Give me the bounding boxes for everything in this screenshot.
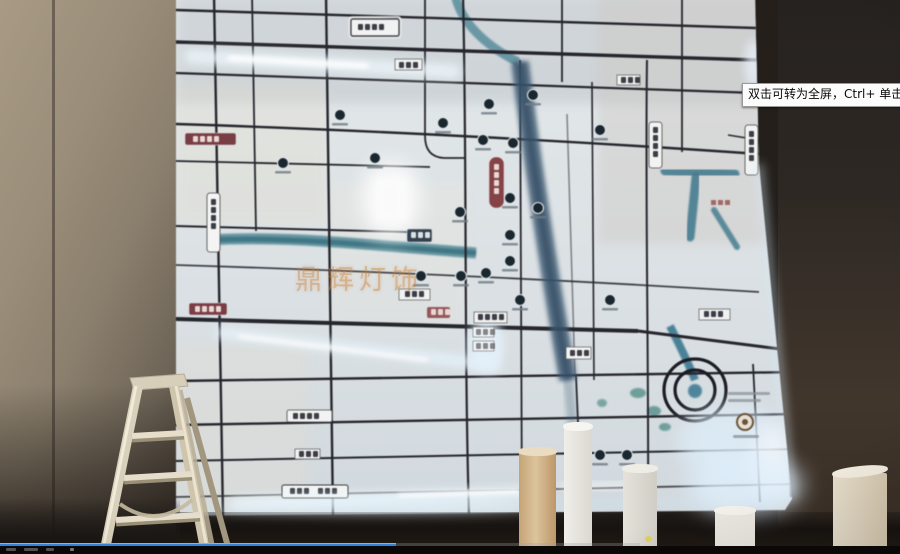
bright-panel	[373, 176, 409, 224]
seek-fill[interactable]	[0, 543, 396, 546]
foreground-column	[519, 452, 556, 548]
map-artwork	[176, 0, 803, 516]
led-floor-glow	[225, 498, 535, 511]
control-remnant	[24, 548, 38, 551]
player-control-bar[interactable]	[0, 546, 900, 554]
foreground-column	[833, 473, 887, 554]
control-remnant	[70, 548, 74, 551]
control-remnant	[46, 548, 54, 551]
fullscreen-tooltip: 双击可转为全屏，Ctrl+ 单击可转为	[742, 83, 900, 107]
step-ladder	[92, 372, 267, 554]
yellow-object	[645, 536, 652, 542]
watermark: 鼎辉灯饰	[295, 258, 423, 297]
control-remnant	[6, 548, 16, 551]
foreground-column	[564, 427, 592, 554]
video-frame[interactable]: 鼎辉灯饰 双击可转为全屏，Ctrl+ 单击可转为	[0, 0, 900, 554]
foreground-column	[623, 469, 657, 554]
